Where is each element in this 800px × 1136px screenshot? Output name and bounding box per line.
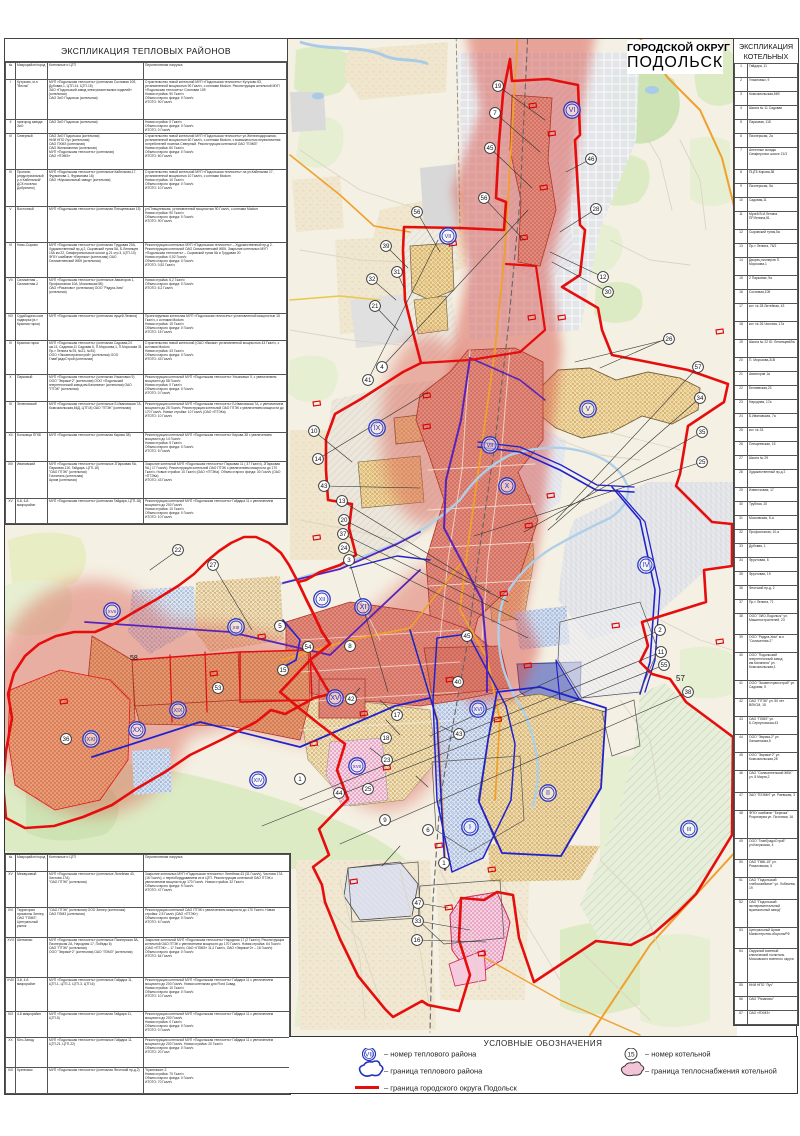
svg-text:58: 58 [130,655,138,662]
svg-text:46: 46 [588,156,595,163]
svg-text:VII: VII [445,234,452,240]
svg-text:– граница теплоснабжения котел: – граница теплоснабжения котельной [645,1067,777,1076]
svg-text:– граница городского округа По: – граница городского округа Подольск [384,1084,518,1093]
svg-text:IV: IV [643,562,650,569]
svg-text:5: 5 [278,623,282,630]
svg-text:30: 30 [605,289,612,296]
svg-text:16: 16 [414,937,421,944]
svg-text:10: 10 [311,428,318,435]
svg-text:45: 45 [464,633,471,640]
svg-text:XX: XX [132,727,142,734]
svg-text:42: 42 [348,696,355,703]
svg-text:XIX: XIX [173,708,182,714]
svg-text:28: 28 [593,206,600,213]
svg-text:26: 26 [666,336,673,343]
svg-text:53: 53 [215,685,222,692]
svg-text:44: 44 [336,790,343,797]
svg-text:6: 6 [426,827,430,834]
svg-text:13: 13 [339,498,346,505]
svg-text:XV: XV [330,695,340,702]
svg-text:12: 12 [600,274,607,281]
svg-text:9: 9 [383,817,387,824]
svg-text:XIII: XIII [233,625,240,630]
svg-text:VI: VI [569,107,576,114]
svg-text:XVI: XVI [473,707,482,713]
svg-text:XVII: XVII [353,764,362,769]
svg-text:24: 24 [341,545,348,552]
svg-text:8: 8 [348,643,352,650]
svg-text:54: 54 [305,644,312,651]
svg-text:15: 15 [280,667,287,674]
svg-text:43: 43 [456,731,463,738]
svg-text:57: 57 [695,364,702,371]
svg-text:17: 17 [394,712,401,719]
svg-text:3: 3 [347,557,351,564]
svg-text:4: 4 [380,364,384,371]
svg-text:37: 37 [340,531,347,538]
svg-text:55: 55 [661,662,668,669]
svg-text:25: 25 [699,459,706,466]
svg-text:I: I [469,824,471,831]
svg-text:19: 19 [495,83,502,90]
svg-text:20: 20 [341,517,348,524]
svg-text:11: 11 [658,649,665,656]
svg-text:32: 32 [369,276,376,283]
svg-text:XXI: XXI [86,737,95,743]
svg-text:25: 25 [365,786,372,793]
svg-text:VII: VII [487,443,494,449]
svg-text:47: 47 [415,900,422,907]
svg-text:23: 23 [384,757,391,764]
svg-text:45: 45 [487,145,494,152]
svg-text:18: 18 [383,735,390,742]
svg-text:31: 31 [394,269,401,276]
svg-text:– граница теплового района: – граница теплового района [384,1067,483,1076]
svg-text:56: 56 [481,195,488,202]
svg-text:15: 15 [627,1051,635,1058]
svg-text:56: 56 [414,209,421,216]
svg-text:1: 1 [442,860,446,867]
svg-text:57: 57 [676,674,685,683]
svg-text:40: 40 [455,679,462,686]
svg-text:34: 34 [697,395,704,402]
svg-text:36: 36 [63,736,70,743]
svg-text:39: 39 [383,243,390,250]
svg-text:X: X [505,483,510,490]
svg-text:IX: IX [374,425,381,432]
svg-text:XVII: XVII [108,609,117,614]
svg-text:14: 14 [315,456,322,463]
svg-text:35: 35 [699,429,706,436]
svg-text:2: 2 [658,627,662,634]
svg-text:VII: VII [365,1051,373,1058]
svg-text:7: 7 [493,110,497,117]
svg-text:43: 43 [321,483,328,490]
svg-text:21: 21 [372,303,379,310]
svg-text:22: 22 [175,547,182,554]
svg-text:XIV: XIV [253,778,262,784]
svg-text:III: III [687,827,692,833]
svg-text:XI: XI [360,604,367,611]
svg-text:– номер теплового района: – номер теплового района [384,1050,477,1059]
svg-text:– номер котельной: – номер котельной [645,1050,711,1059]
svg-text:XII: XII [319,597,326,603]
svg-text:38: 38 [685,689,692,696]
svg-text:41: 41 [365,377,372,384]
svg-text:1: 1 [298,776,302,783]
svg-text:33: 33 [415,918,422,925]
svg-text:V: V [586,406,591,413]
svg-text:27: 27 [210,562,217,569]
svg-text:II: II [546,790,550,797]
